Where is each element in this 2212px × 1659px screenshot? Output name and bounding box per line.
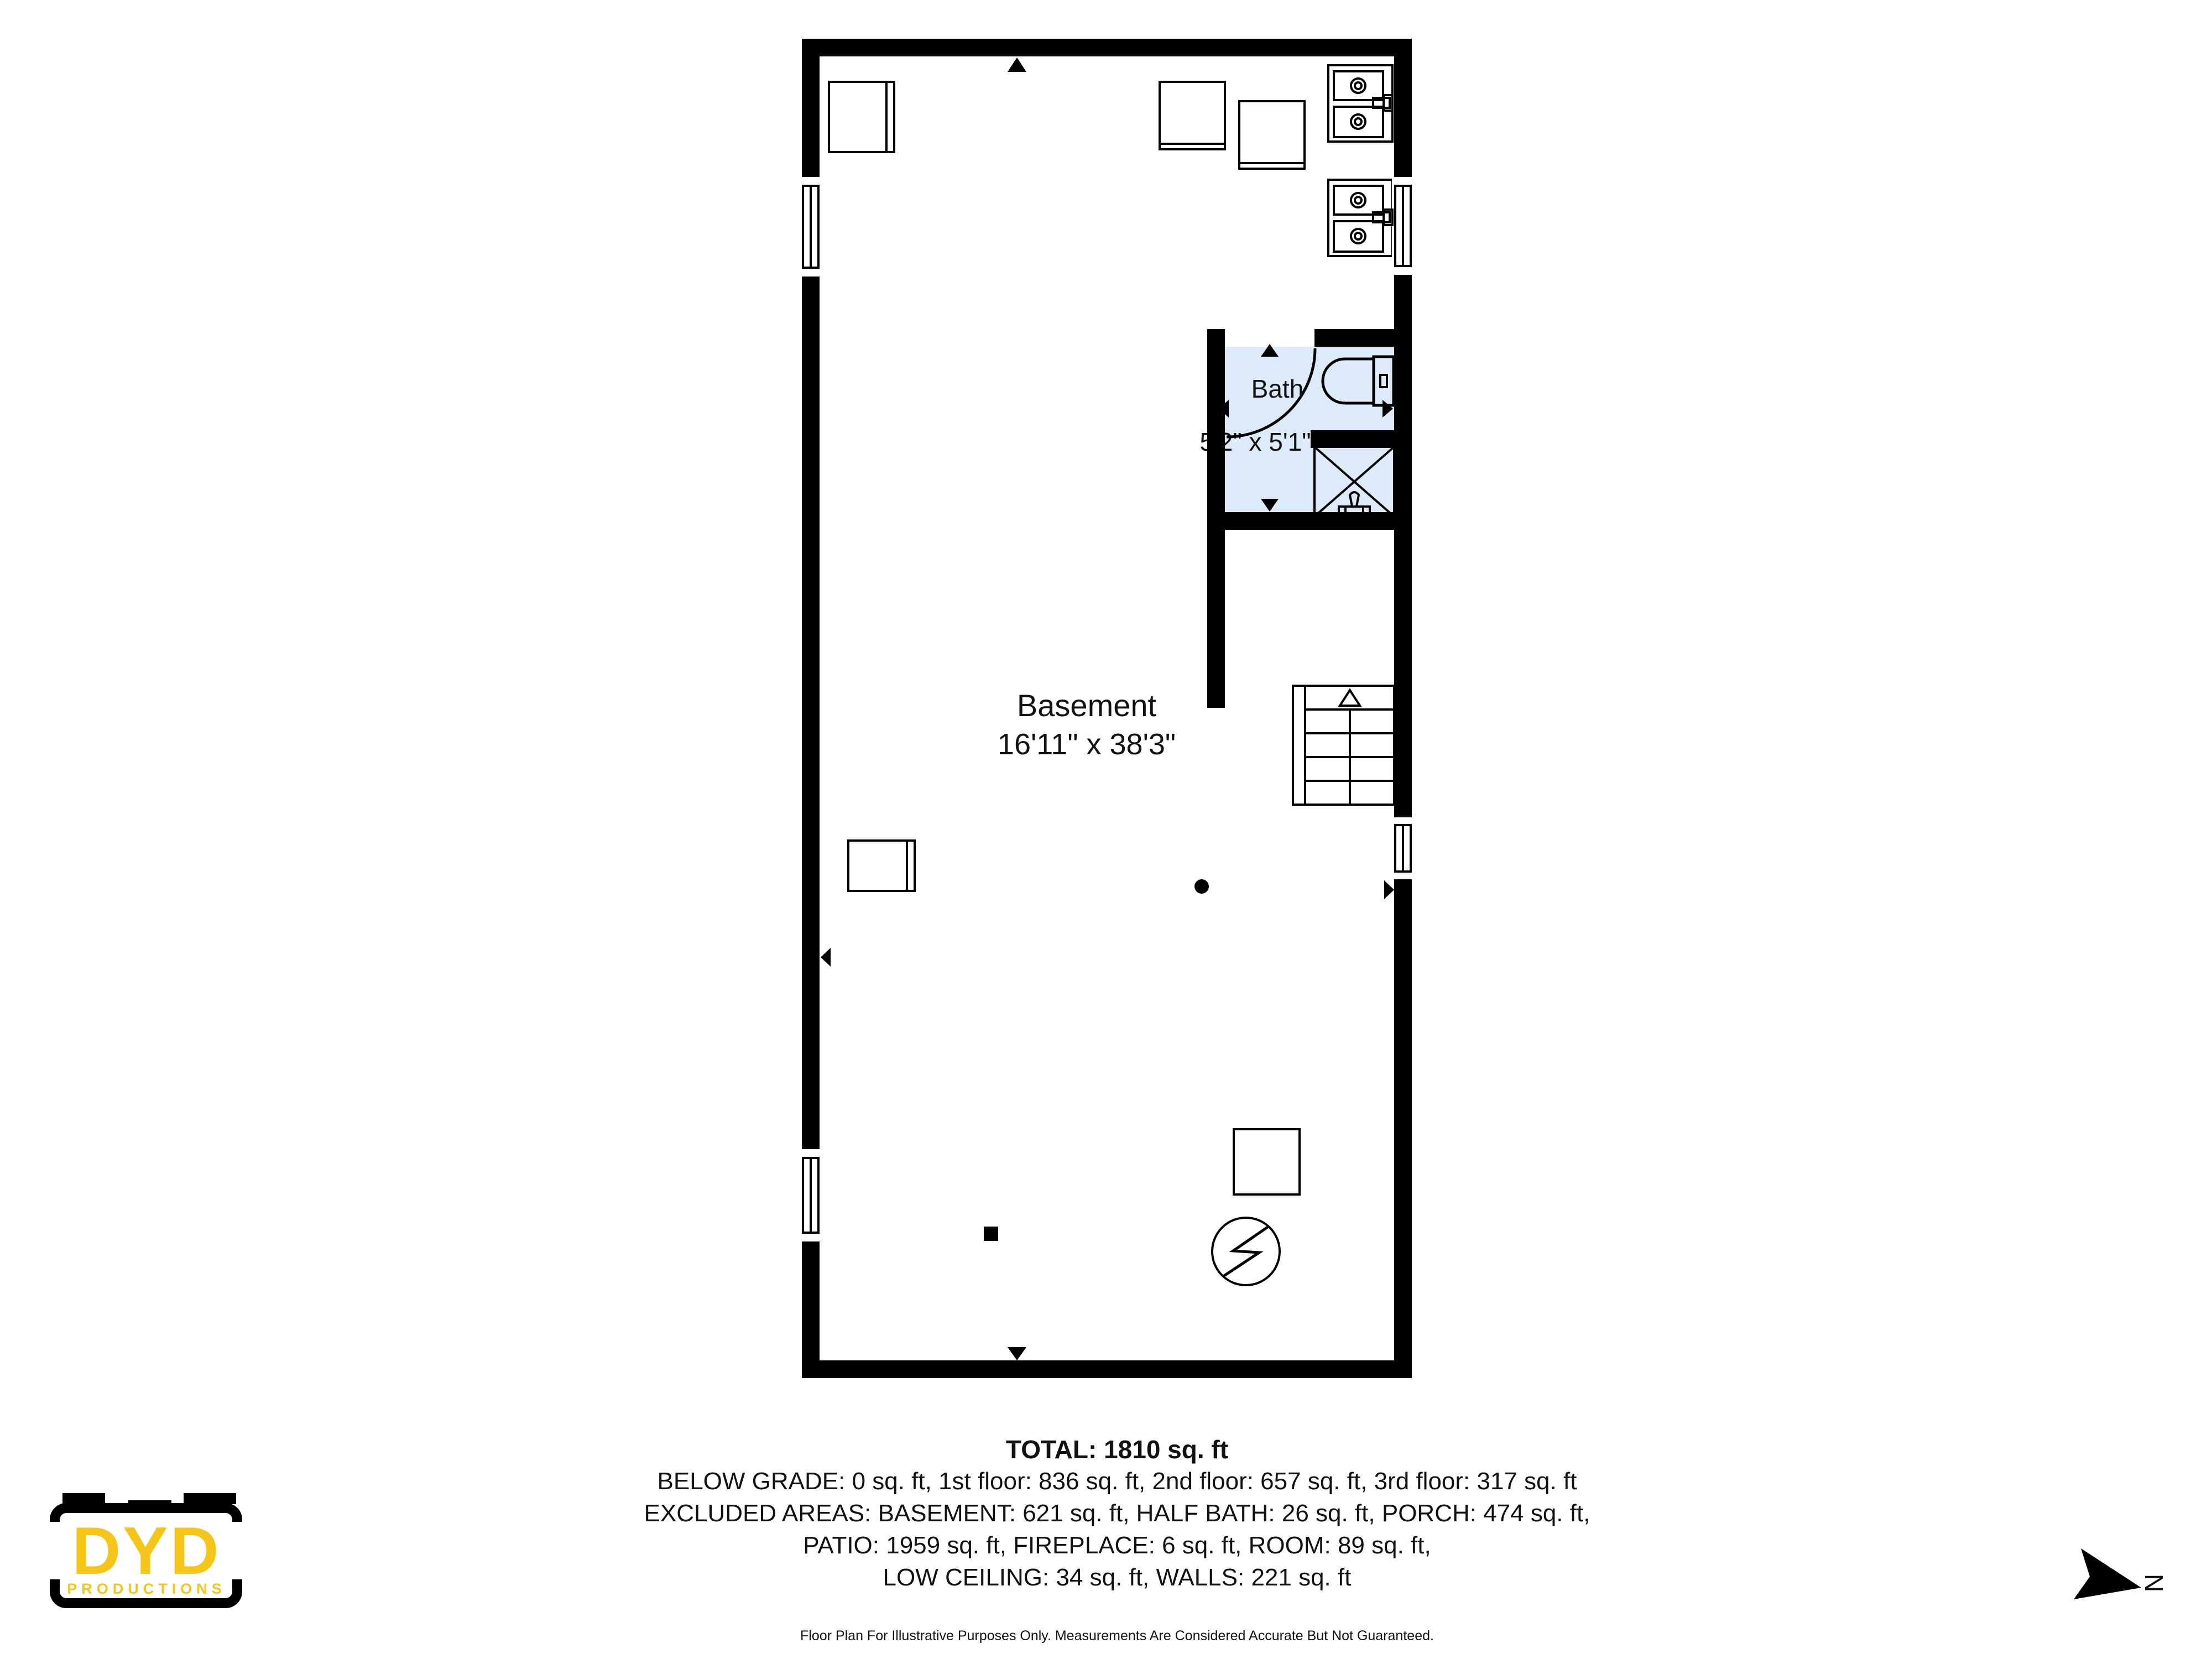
summary-line: LOW CEILING: 34 sq. ft, WALLS: 221 sq. f… [564, 1562, 1670, 1594]
summary-line: BELOW GRADE: 0 sq. ft, 1st floor: 836 sq… [564, 1465, 1670, 1498]
total-area: TOTAL: 1810 sq. ft [564, 1433, 1670, 1465]
summary-line: PATIO: 1959 sq. ft, FIREPLACE: 6 sq. ft,… [564, 1530, 1670, 1562]
summary-line: EXCLUDED AREAS: BASEMENT: 621 sq. ft, HA… [564, 1498, 1670, 1530]
logo-bump [62, 1493, 105, 1512]
fixtures-overlay [0, 0, 2212, 1659]
column-dot [1194, 879, 1209, 894]
logo-bump [184, 1493, 236, 1504]
stairs-icon [1293, 686, 1394, 805]
room-label-bath: Bath [1194, 374, 1360, 404]
camera-logo-icon: DYD PRODUCTIONS [50, 1493, 243, 1610]
disclaimer-text: Floor Plan For Illustrative Purposes Onl… [564, 1628, 1670, 1644]
post-square [984, 1227, 998, 1241]
floor-plan-page: 5'2" x 5'1" [0, 0, 2212, 1659]
shower-icon [1314, 447, 1394, 517]
room-label-basement: Basement [921, 687, 1253, 723]
electrical-panel-icon [1212, 1218, 1280, 1285]
logo-title: DYD [46, 1522, 247, 1579]
logo-subtitle: PRODUCTIONS [50, 1580, 243, 1598]
area-summary: TOTAL: 1810 sq. ft BELOW GRADE: 0 sq. ft… [564, 1433, 1670, 1594]
logo-bump [128, 1500, 171, 1511]
north-arrow-icon [2074, 1548, 2141, 1599]
north-label: N [2136, 1574, 2169, 1607]
double-sink-icon [1351, 79, 1392, 243]
room-dims-basement: 16'11" x 38'3" [921, 727, 1253, 761]
